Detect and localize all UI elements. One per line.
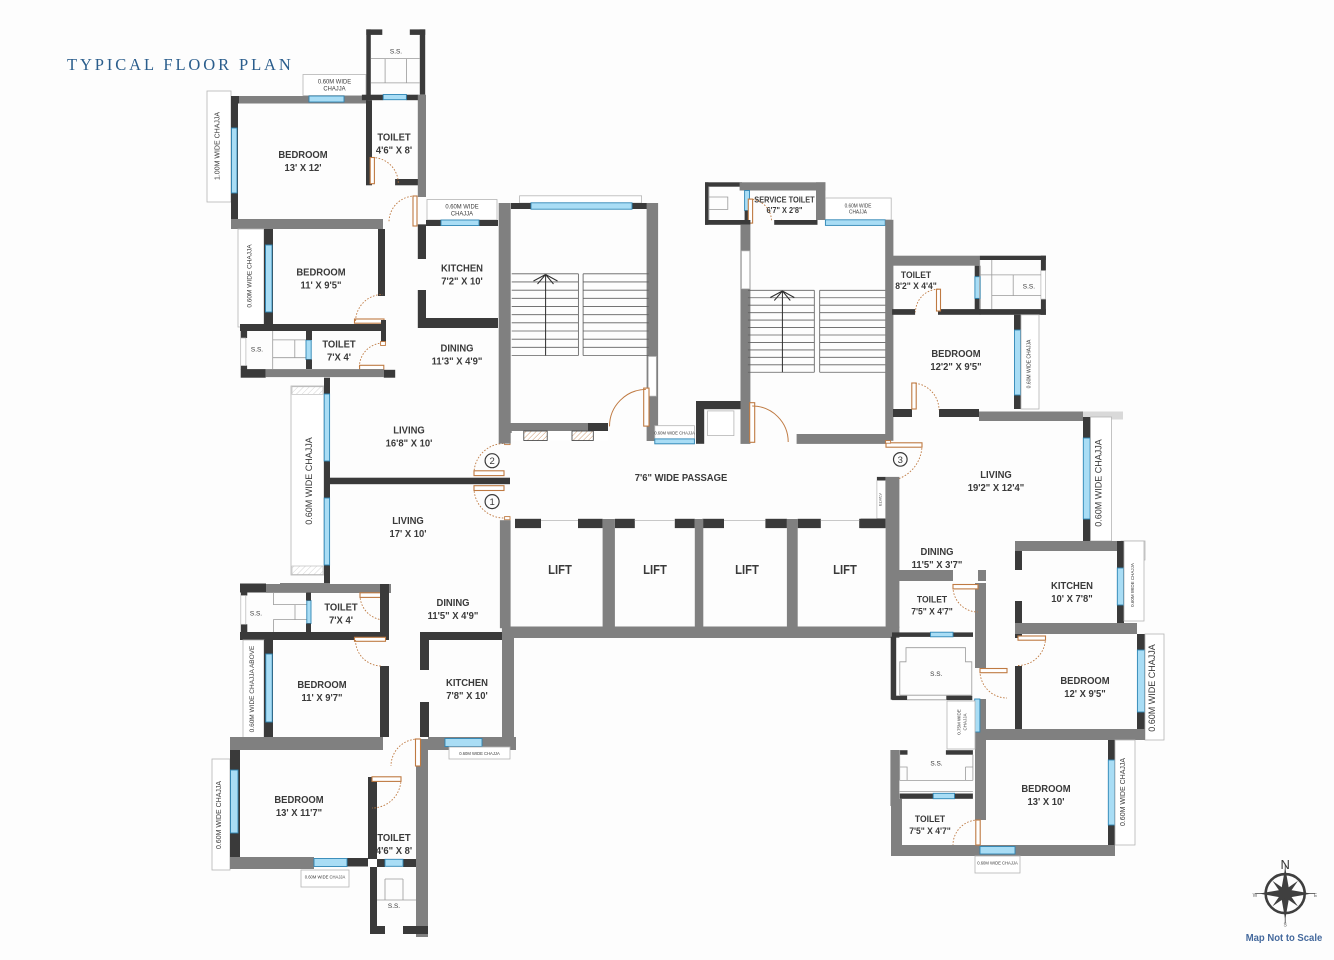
svg-text:CHAJJA: CHAJJA <box>323 86 346 92</box>
svg-text:0.60M WIDE CHAJJA: 0.60M WIDE CHAJJA <box>304 437 314 525</box>
svg-text:0.60M WIDE: 0.60M WIDE <box>318 79 351 85</box>
svg-text:S.S.: S.S. <box>388 903 400 910</box>
svg-text:S.S.: S.S. <box>390 48 402 55</box>
svg-text:2: 2 <box>489 456 494 467</box>
svg-text:CHAJJA: CHAJJA <box>849 209 868 215</box>
svg-text:DINING: DINING <box>436 598 469 610</box>
svg-text:7'8" X 10': 7'8" X 10' <box>446 691 487 703</box>
svg-text:LIFT: LIFT <box>643 562 667 577</box>
svg-text:8'2" X 4'4": 8'2" X 4'4" <box>895 281 937 292</box>
svg-text:TOILET: TOILET <box>917 594 948 605</box>
svg-text:0.60M WIDE: 0.60M WIDE <box>845 203 873 209</box>
svg-text:19'2" X 12'4": 19'2" X 12'4" <box>968 483 1025 495</box>
svg-text:Map Not to Scale: Map Not to Scale <box>1246 933 1323 944</box>
svg-text:S.S.: S.S. <box>250 610 262 617</box>
svg-text:0.60M WIDE CHAJJA: 0.60M WIDE CHAJJA <box>305 874 346 879</box>
svg-text:7'X 4': 7'X 4' <box>329 615 353 627</box>
svg-text:TYPICAL FLOOR PLAN: TYPICAL FLOOR PLAN <box>67 55 294 74</box>
svg-text:3: 3 <box>898 455 903 466</box>
svg-text:13' X 12': 13' X 12' <box>285 163 322 175</box>
svg-text:KITCHEN: KITCHEN <box>441 263 483 275</box>
svg-text:11' X 9'5": 11' X 9'5" <box>301 280 342 292</box>
svg-text:LIFT: LIFT <box>548 562 572 577</box>
svg-text:7'5" X 4'7": 7'5" X 4'7" <box>911 606 953 617</box>
svg-text:0.60M WIDE CHAJJA: 0.60M WIDE CHAJJA <box>216 781 223 849</box>
svg-text:KITCHEN: KITCHEN <box>1051 581 1093 593</box>
svg-text:BEDROOM: BEDROOM <box>1021 784 1070 796</box>
svg-text:0.60M WIDE CHAJJA: 0.60M WIDE CHAJJA <box>1147 644 1157 732</box>
svg-text:1.00M WIDE CHAJJA: 1.00M WIDE CHAJJA <box>215 112 222 180</box>
svg-text:S.S.: S.S. <box>930 671 942 678</box>
svg-text:DINING: DINING <box>920 547 953 559</box>
svg-text:DINING: DINING <box>440 343 473 355</box>
svg-text:7'X 4': 7'X 4' <box>327 352 351 364</box>
svg-text:TOILET: TOILET <box>324 602 357 614</box>
svg-text:11'3" X 4'9": 11'3" X 4'9" <box>432 356 483 368</box>
svg-text:S.S.: S.S. <box>930 760 942 767</box>
svg-text:13' X 10': 13' X 10' <box>1028 797 1065 809</box>
svg-text:0.60M WIDE CHAJJA ABOVE: 0.60M WIDE CHAJJA ABOVE <box>249 645 256 732</box>
svg-text:BEDROOM: BEDROOM <box>278 150 327 162</box>
svg-text:LIVING: LIVING <box>392 516 424 528</box>
svg-text:N: N <box>1281 857 1290 872</box>
svg-text:BEDROOM: BEDROOM <box>296 267 345 279</box>
svg-text:0.60M WIDE CHAJJA: 0.60M WIDE CHAJJA <box>1130 563 1135 607</box>
svg-text:BEDROOM: BEDROOM <box>931 349 980 361</box>
svg-text:12'2" X 9'5": 12'2" X 9'5" <box>930 362 981 374</box>
svg-text:10' X 7'8": 10' X 7'8" <box>1051 594 1093 606</box>
svg-text:S.S.: S.S. <box>251 346 263 353</box>
svg-text:ELV/LV: ELV/LV <box>878 493 883 506</box>
svg-text:KITCHEN: KITCHEN <box>446 678 488 690</box>
svg-text:SERVICE TOILET: SERVICE TOILET <box>754 195 815 204</box>
svg-text:TOILET: TOILET <box>901 270 932 281</box>
svg-text:S.S.: S.S. <box>1023 283 1035 290</box>
svg-text:0.60M WIDE CHAJJA: 0.60M WIDE CHAJJA <box>1094 439 1104 527</box>
svg-text:0.60M WIDE CHAJJA: 0.60M WIDE CHAJJA <box>1120 758 1127 826</box>
svg-text:TOILET: TOILET <box>377 833 410 845</box>
svg-text:TOILET: TOILET <box>377 132 410 144</box>
svg-text:6'7" X 2'8": 6'7" X 2'8" <box>767 206 803 215</box>
svg-text:W: W <box>1253 893 1258 899</box>
svg-text:1: 1 <box>489 497 494 508</box>
svg-text:LIVING: LIVING <box>393 425 425 437</box>
svg-text:16'8" X 10': 16'8" X 10' <box>386 438 433 450</box>
svg-text:LIVING: LIVING <box>980 470 1012 482</box>
svg-text:0.75M WIDE: 0.75M WIDE <box>957 709 962 735</box>
svg-text:7'2" X 10': 7'2" X 10' <box>441 276 482 288</box>
svg-text:LIFT: LIFT <box>833 562 857 577</box>
svg-text:0.60M WIDE CHAJJA: 0.60M WIDE CHAJJA <box>1027 339 1033 388</box>
svg-text:BEDROOM: BEDROOM <box>1060 676 1109 688</box>
svg-text:TOILET: TOILET <box>322 339 355 351</box>
svg-text:11'5" X 4'9": 11'5" X 4'9" <box>428 611 479 623</box>
svg-text:4'6" X 8': 4'6" X 8' <box>376 846 412 858</box>
svg-text:11'5" X 3'7": 11'5" X 3'7" <box>912 560 963 572</box>
svg-text:0.60M WIDE CHAJJA: 0.60M WIDE CHAJJA <box>247 244 254 308</box>
svg-text:CHAJJA: CHAJJA <box>963 713 968 730</box>
svg-text:11' X 9'7": 11' X 9'7" <box>302 693 343 705</box>
svg-text:0.60M WIDE CHAJJA: 0.60M WIDE CHAJJA <box>977 860 1018 865</box>
svg-text:17' X 10': 17' X 10' <box>390 529 427 541</box>
svg-text:BEDROOM: BEDROOM <box>297 680 346 692</box>
svg-text:7'6" WIDE PASSAGE: 7'6" WIDE PASSAGE <box>635 473 728 485</box>
svg-text:CHAJJA: CHAJJA <box>451 211 474 217</box>
svg-text:BEDROOM: BEDROOM <box>274 795 323 807</box>
svg-text:LIFT: LIFT <box>735 562 759 577</box>
svg-text:0.60M WIDE CHAJJA: 0.60M WIDE CHAJJA <box>654 430 695 435</box>
svg-text:0.60M WIDE CHAJJA: 0.60M WIDE CHAJJA <box>459 751 500 756</box>
svg-text:12' X 9'5": 12' X 9'5" <box>1064 689 1106 701</box>
svg-text:TOILET: TOILET <box>915 814 946 825</box>
svg-text:7'5" X 4'7": 7'5" X 4'7" <box>909 826 951 837</box>
svg-text:4'6" X 8': 4'6" X 8' <box>376 145 412 157</box>
svg-text:0.60M WIDE: 0.60M WIDE <box>445 204 478 210</box>
svg-text:13' X 11'7": 13' X 11'7" <box>276 808 322 820</box>
